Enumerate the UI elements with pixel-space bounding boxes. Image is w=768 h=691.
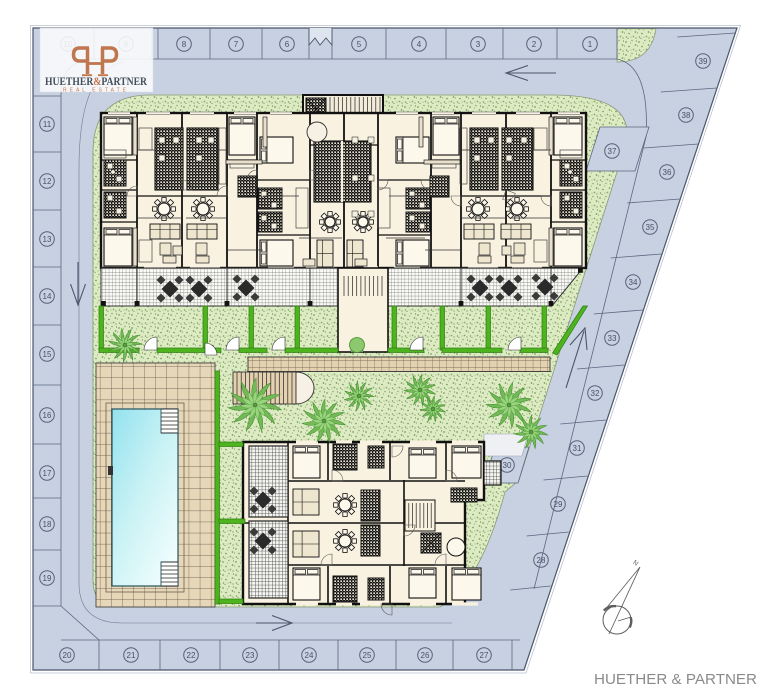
svg-text:27: 27 <box>480 651 489 660</box>
svg-text:22: 22 <box>187 651 196 660</box>
svg-text:4: 4 <box>417 40 422 49</box>
svg-text:6: 6 <box>285 40 290 49</box>
svg-text:31: 31 <box>573 444 582 453</box>
svg-text:1: 1 <box>588 40 593 49</box>
svg-text:3: 3 <box>476 40 481 49</box>
svg-text:REAL ESTATE: REAL ESTATE <box>63 88 129 94</box>
svg-text:39: 39 <box>699 57 708 66</box>
svg-text:15: 15 <box>43 350 52 359</box>
svg-text:5: 5 <box>357 40 362 49</box>
svg-text:37: 37 <box>608 147 617 156</box>
svg-text:2: 2 <box>532 40 537 49</box>
svg-text:HUETHER&PARTNER: HUETHER&PARTNER <box>45 76 148 88</box>
svg-text:29: 29 <box>554 500 563 509</box>
svg-text:36: 36 <box>663 168 672 177</box>
svg-text:17: 17 <box>43 469 52 478</box>
svg-text:20: 20 <box>63 651 72 660</box>
svg-text:HUETHER & PARTNER: HUETHER & PARTNER <box>594 671 757 688</box>
svg-text:7: 7 <box>234 40 239 49</box>
svg-text:24: 24 <box>305 651 314 660</box>
svg-text:11: 11 <box>43 120 52 129</box>
svg-text:34: 34 <box>629 278 638 287</box>
svg-text:23: 23 <box>246 651 255 660</box>
svg-text:13: 13 <box>43 235 52 244</box>
svg-text:14: 14 <box>43 292 52 301</box>
svg-text:32: 32 <box>591 389 600 398</box>
svg-text:19: 19 <box>43 574 52 583</box>
svg-text:35: 35 <box>646 223 655 232</box>
svg-text:21: 21 <box>127 651 136 660</box>
svg-text:16: 16 <box>43 411 52 420</box>
svg-text:12: 12 <box>43 177 52 186</box>
svg-text:28: 28 <box>537 556 546 565</box>
svg-text:18: 18 <box>43 520 52 529</box>
svg-text:26: 26 <box>421 651 430 660</box>
svg-text:25: 25 <box>363 651 372 660</box>
svg-text:8: 8 <box>182 40 187 49</box>
svg-text:30: 30 <box>503 461 512 470</box>
svg-text:38: 38 <box>682 111 691 120</box>
svg-text:33: 33 <box>608 334 617 343</box>
